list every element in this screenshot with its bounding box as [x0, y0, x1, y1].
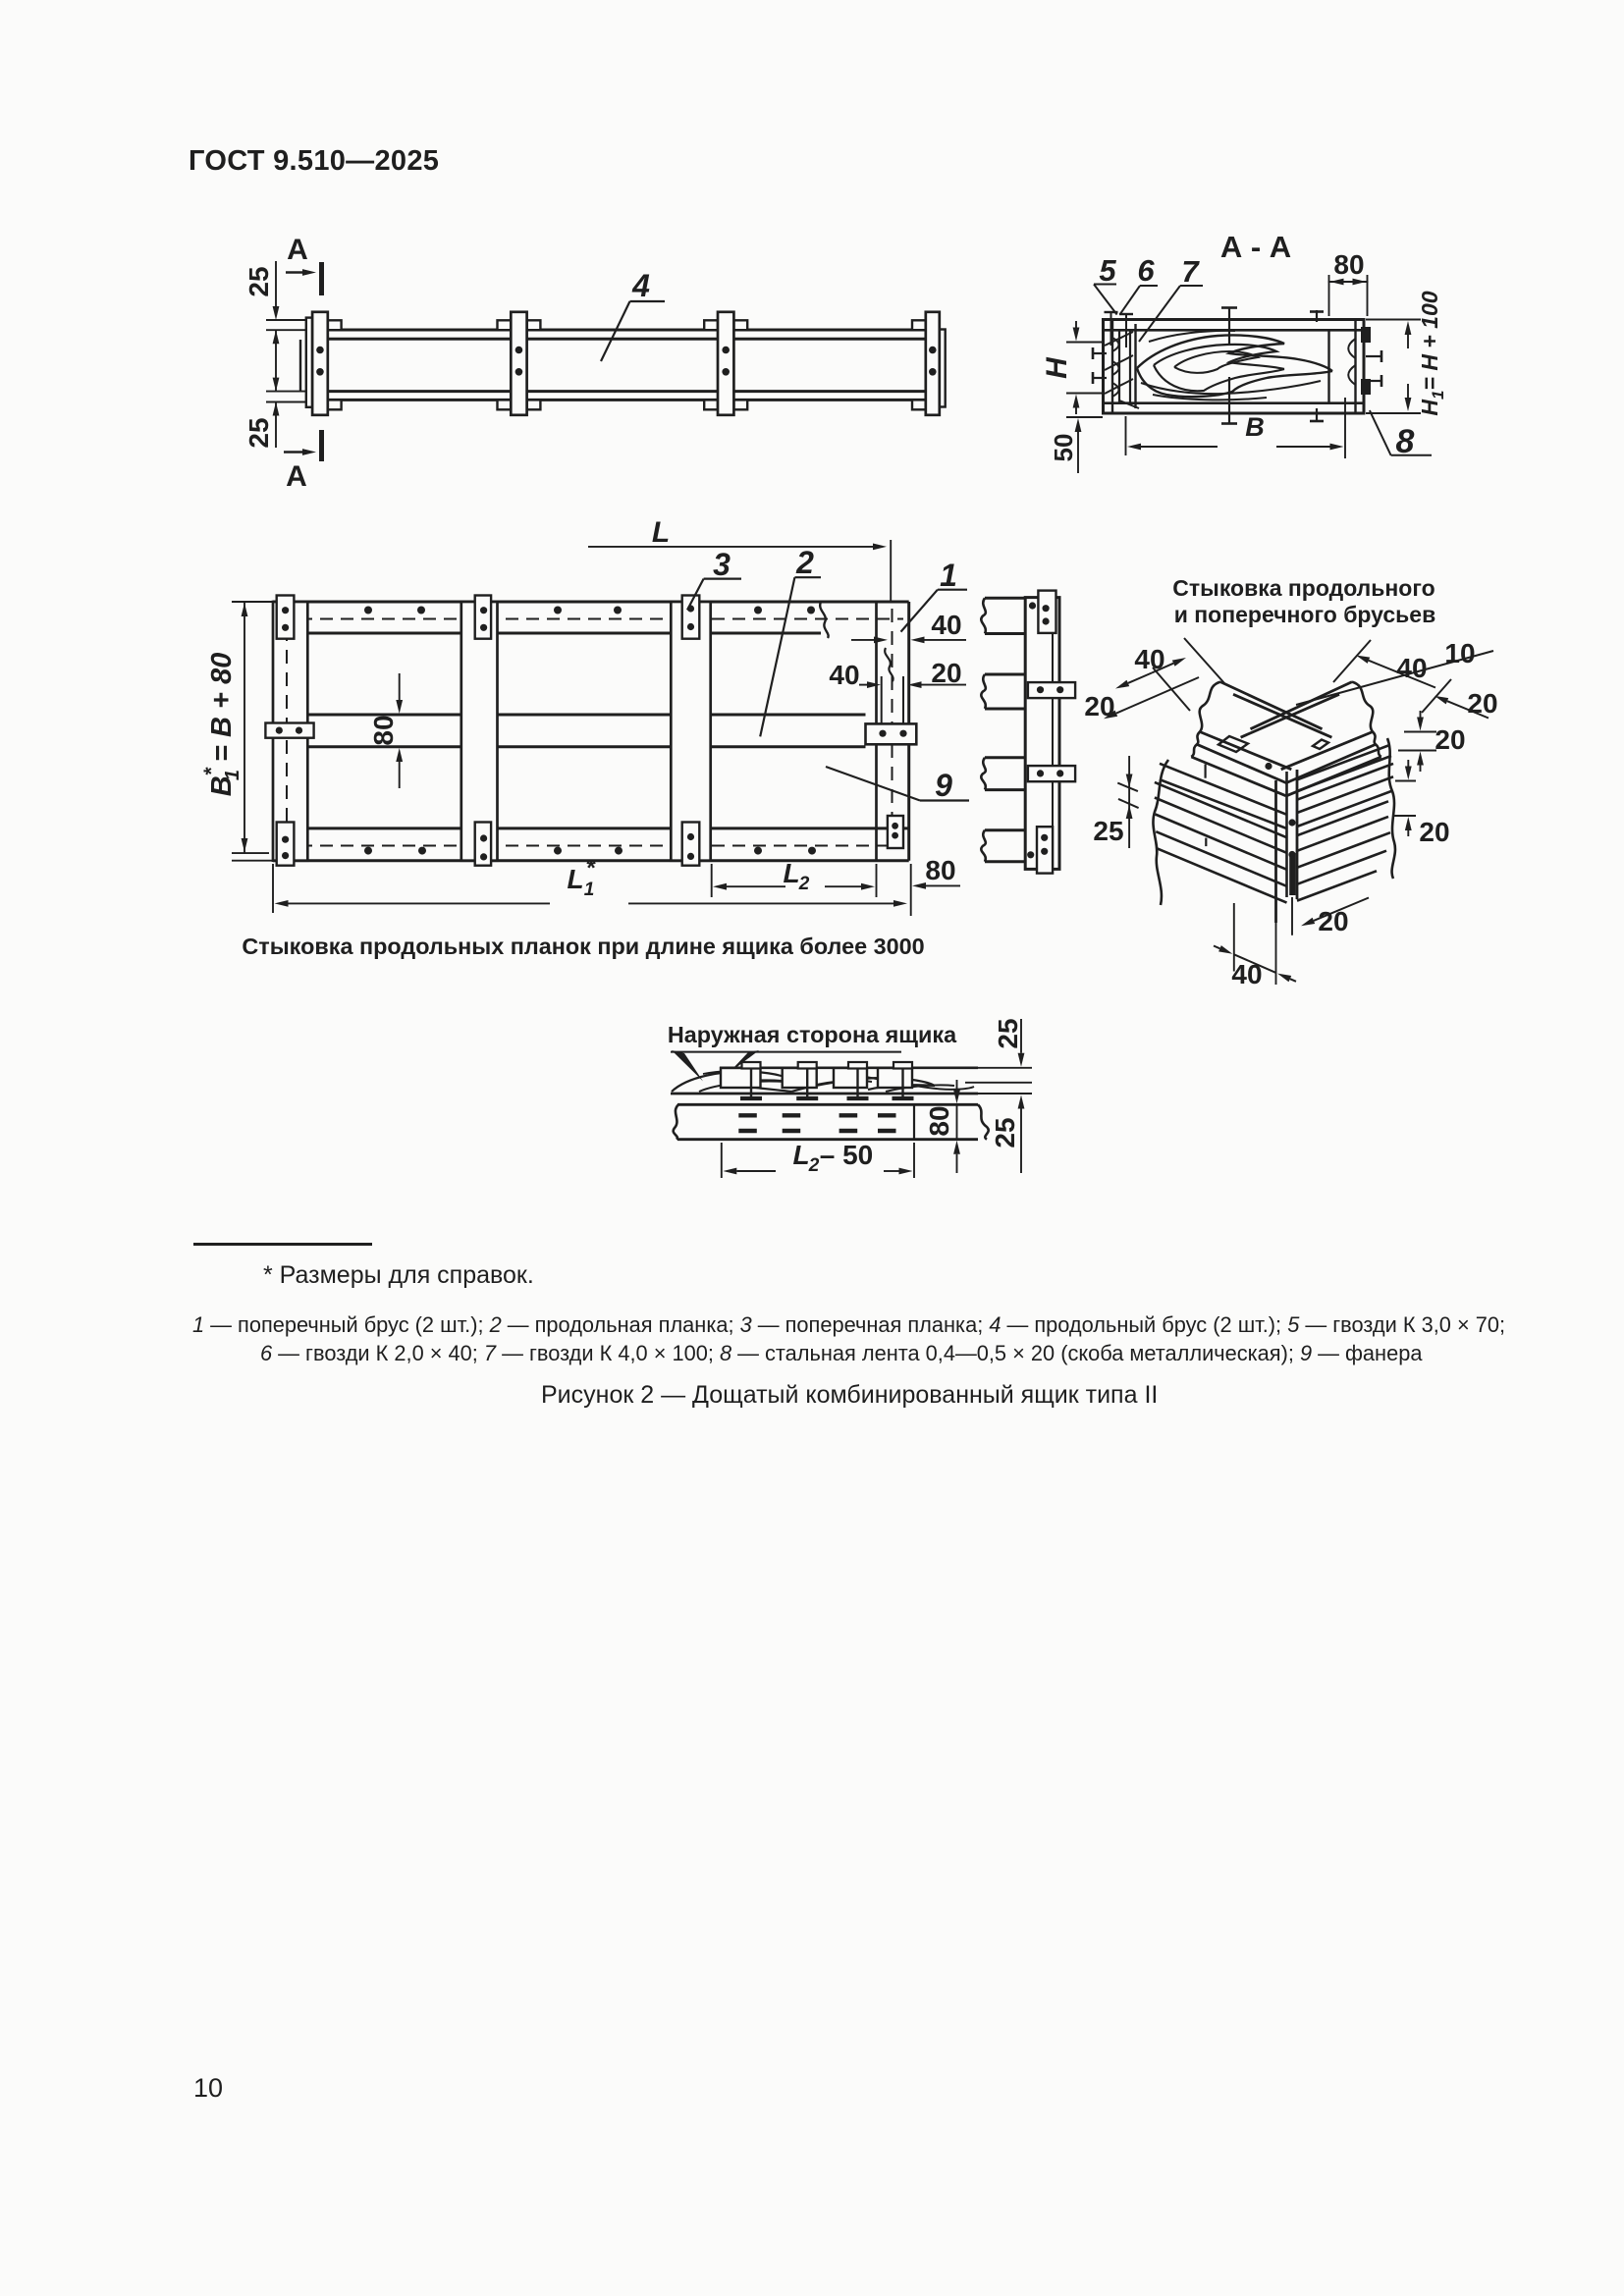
svg-text:25: 25	[993, 1018, 1023, 1048]
svg-text:20: 20	[1435, 724, 1465, 755]
svg-text:25: 25	[244, 417, 274, 448]
svg-text:3: 3	[713, 547, 731, 582]
svg-text:2: 2	[795, 545, 814, 580]
svg-text:80: 80	[925, 855, 955, 885]
svg-text:6: 6	[1137, 253, 1155, 288]
svg-text:7: 7	[1181, 254, 1200, 289]
svg-text:20: 20	[1318, 906, 1348, 936]
svg-text:А - А: А - А	[1220, 230, 1291, 264]
svg-text:L: L	[652, 516, 670, 549]
svg-text:2: 2	[808, 1155, 820, 1176]
svg-text:H1= H + 100: H1= H + 100	[1417, 291, 1447, 415]
svg-text:1: 1	[940, 558, 957, 593]
svg-text:40: 40	[931, 610, 961, 640]
svg-text:1: 1	[584, 880, 595, 900]
svg-text:25: 25	[990, 1117, 1020, 1148]
svg-text:Стыковка продольного: Стыковка продольного	[1172, 575, 1435, 601]
svg-text:4: 4	[631, 268, 650, 303]
svg-text:25: 25	[1093, 816, 1123, 846]
svg-text:L: L	[567, 864, 583, 894]
svg-text:Стыковка продольных планок при: Стыковка продольных планок при длине ящи…	[242, 934, 924, 959]
svg-text:80: 80	[924, 1105, 954, 1136]
svg-text:9: 9	[935, 768, 952, 803]
svg-text:80: 80	[1333, 249, 1364, 280]
svg-text:и поперечного брусьев: и поперечного брусьев	[1174, 602, 1435, 627]
svg-text:– 50: – 50	[820, 1140, 874, 1170]
svg-text:B*1 = B + 80: B*1 = B + 80	[200, 653, 244, 797]
svg-text:5: 5	[1099, 253, 1116, 288]
svg-text:20: 20	[1419, 817, 1449, 847]
svg-text:*: *	[586, 855, 596, 881]
svg-text:H: H	[1041, 356, 1073, 379]
svg-text:20: 20	[931, 658, 961, 688]
svg-text:25: 25	[244, 266, 274, 296]
svg-text:A: A	[287, 234, 308, 266]
svg-text:2: 2	[798, 874, 810, 894]
svg-text:Наружная сторона ящика: Наружная сторона ящика	[668, 1022, 957, 1047]
svg-text:B: B	[1245, 412, 1265, 442]
svg-text:40: 40	[829, 660, 859, 690]
svg-text:20: 20	[1467, 688, 1497, 719]
svg-text:L: L	[783, 858, 799, 888]
svg-text:40: 40	[1231, 959, 1262, 989]
svg-text:A: A	[286, 460, 307, 493]
svg-text:L: L	[792, 1140, 809, 1170]
svg-text:50: 50	[1049, 434, 1078, 462]
svg-text:80: 80	[368, 715, 399, 745]
svg-text:10: 10	[1444, 638, 1475, 668]
